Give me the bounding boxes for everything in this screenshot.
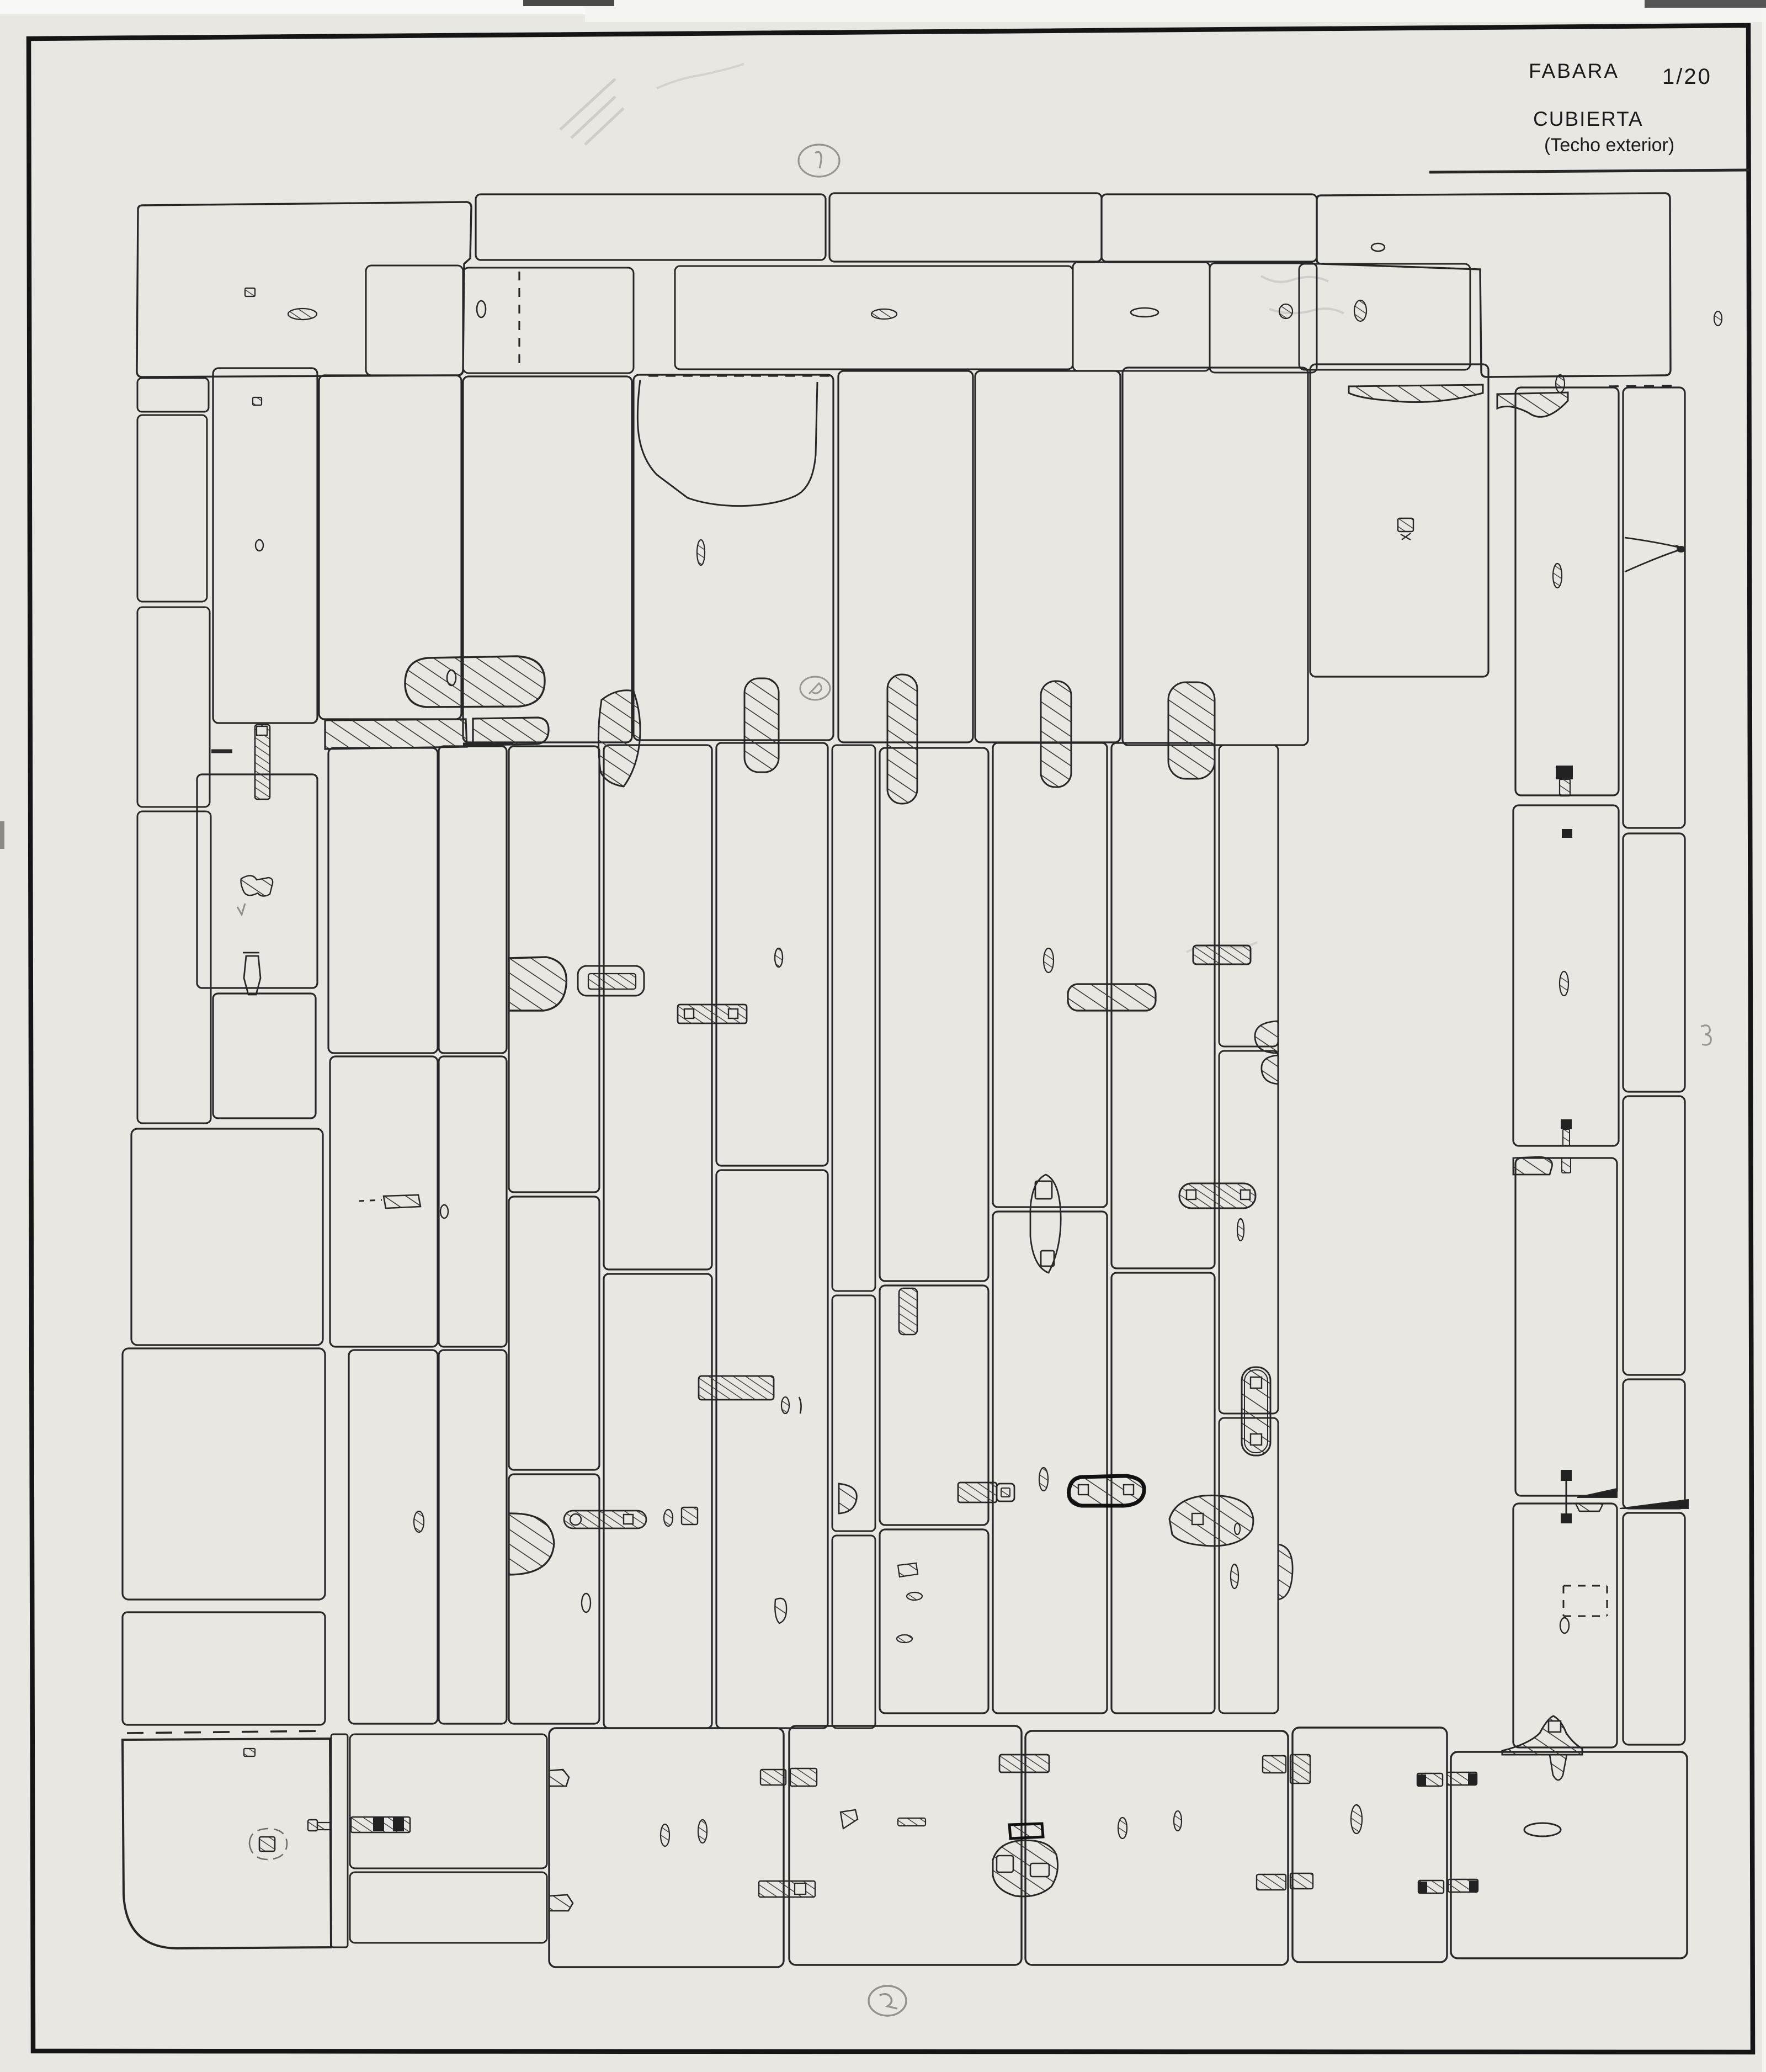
svg-text:(Techo exterior): (Techo exterior) xyxy=(1544,135,1674,156)
svg-text:1/20: 1/20 xyxy=(1662,65,1712,89)
svg-text:CUBIERTA: CUBIERTA xyxy=(1533,108,1643,130)
svg-text:FABARA: FABARA xyxy=(1529,60,1619,82)
